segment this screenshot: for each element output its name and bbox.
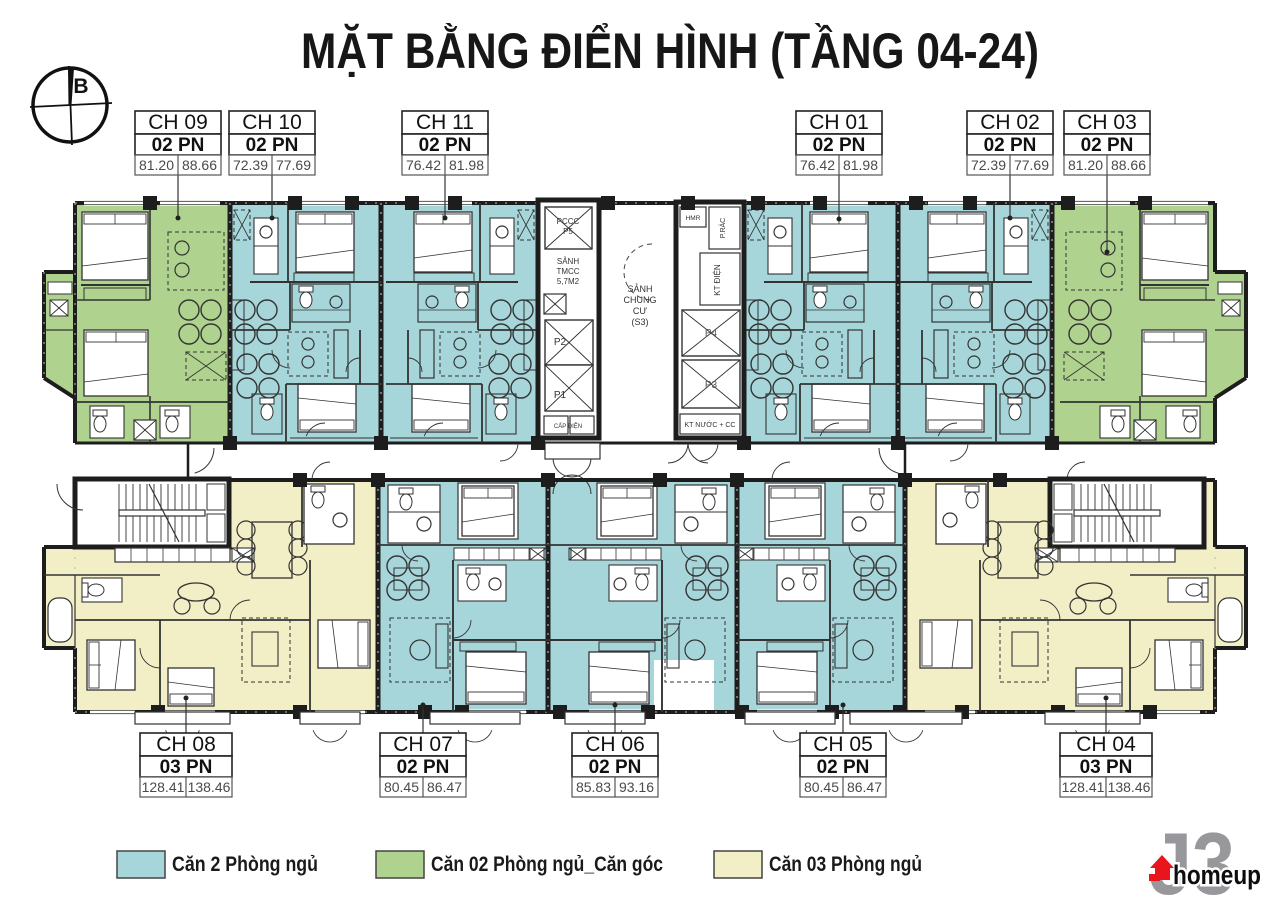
- svg-text:CH 05: CH 05: [813, 733, 873, 756]
- svg-text:128.41: 128.41: [142, 779, 185, 795]
- svg-text:CH 08: CH 08: [156, 733, 216, 756]
- svg-text:Căn 2 Phòng ngủ: Căn 2 Phòng ngủ: [172, 853, 318, 876]
- svg-text:Căn 03 Phòng ngủ: Căn 03 Phòng ngủ: [769, 853, 922, 876]
- svg-text:03 PN: 03 PN: [1080, 757, 1133, 778]
- svg-text:80.45: 80.45: [384, 779, 419, 795]
- svg-text:02 PN: 02 PN: [817, 757, 870, 778]
- svg-text:CH 01: CH 01: [809, 111, 869, 134]
- svg-text:P1: P1: [554, 390, 567, 401]
- svg-text:02 PN: 02 PN: [813, 135, 866, 156]
- svg-text:128.41: 128.41: [1062, 779, 1105, 795]
- svg-text:02 PN: 02 PN: [246, 135, 299, 156]
- svg-text:76.42: 76.42: [406, 157, 441, 173]
- svg-text:93.16: 93.16: [619, 779, 654, 795]
- svg-text:77.69: 77.69: [276, 157, 311, 173]
- svg-text:02 PN: 02 PN: [589, 757, 642, 778]
- svg-text:HMR: HMR: [686, 215, 701, 222]
- svg-text:CHUNG: CHUNG: [624, 295, 657, 305]
- svg-text:CH 03: CH 03: [1077, 111, 1137, 134]
- svg-text:PCCC: PCCC: [557, 217, 580, 226]
- svg-text:02 PN: 02 PN: [1081, 135, 1134, 156]
- svg-text:02 PN: 02 PN: [984, 135, 1037, 156]
- svg-text:72.39: 72.39: [233, 157, 268, 173]
- svg-text:(S3): (S3): [631, 317, 648, 327]
- svg-text:138.46: 138.46: [188, 779, 231, 795]
- svg-text:P5: P5: [563, 227, 573, 236]
- svg-text:88.66: 88.66: [1111, 157, 1146, 173]
- svg-text:SẢNH: SẢNH: [627, 283, 652, 294]
- svg-text:CH 10: CH 10: [242, 111, 302, 134]
- svg-text:P2: P2: [554, 337, 567, 348]
- svg-text:SẢNH: SẢNH: [557, 257, 579, 266]
- svg-text:85.83: 85.83: [576, 779, 611, 795]
- svg-text:81.98: 81.98: [449, 157, 484, 173]
- svg-text:02 PN: 02 PN: [397, 757, 450, 778]
- svg-text:KT ĐIỆN: KT ĐIỆN: [713, 264, 722, 296]
- svg-text:88.66: 88.66: [182, 157, 217, 173]
- svg-text:81.98: 81.98: [843, 157, 878, 173]
- svg-text:CH 06: CH 06: [585, 733, 645, 756]
- svg-text:86.47: 86.47: [427, 779, 462, 795]
- svg-text:TMCC: TMCC: [556, 267, 579, 276]
- svg-text:72.39: 72.39: [971, 157, 1006, 173]
- svg-text:CH 09: CH 09: [148, 111, 208, 134]
- svg-text:86.47: 86.47: [847, 779, 882, 795]
- svg-text:B: B: [73, 75, 88, 98]
- svg-text:MẶT BẰNG ĐIỂN HÌNH (TẦNG 04-24: MẶT BẰNG ĐIỂN HÌNH (TẦNG 04-24): [301, 23, 1039, 79]
- svg-text:P.RÁC: P.RÁC: [718, 218, 727, 239]
- svg-text:CH 07: CH 07: [393, 733, 453, 756]
- svg-text:homeup: homeup: [1173, 860, 1261, 890]
- svg-text:CẤP ĐIỆN: CẤP ĐIỆN: [554, 422, 582, 430]
- svg-text:CH 02: CH 02: [980, 111, 1040, 134]
- svg-text:81.20: 81.20: [139, 157, 174, 173]
- svg-text:CH 11: CH 11: [416, 111, 474, 134]
- svg-text:KT NƯỚC + CC: KT NƯỚC + CC: [685, 420, 736, 429]
- svg-text:Căn 02 Phòng ngủ_Căn góc: Căn 02 Phòng ngủ_Căn góc: [431, 853, 663, 876]
- svg-text:76.42: 76.42: [800, 157, 835, 173]
- svg-text:80.45: 80.45: [804, 779, 839, 795]
- svg-text:02 PN: 02 PN: [419, 135, 472, 156]
- svg-text:138.46: 138.46: [1108, 779, 1151, 795]
- svg-text:P4: P4: [705, 328, 718, 339]
- svg-text:77.69: 77.69: [1014, 157, 1049, 173]
- svg-text:5,7M2: 5,7M2: [557, 277, 580, 286]
- svg-text:CH 04: CH 04: [1076, 733, 1136, 756]
- svg-text:P3: P3: [705, 380, 718, 391]
- svg-text:81.20: 81.20: [1068, 157, 1103, 173]
- svg-text:03 PN: 03 PN: [160, 757, 213, 778]
- svg-text:CƯ: CƯ: [633, 306, 647, 316]
- svg-text:02 PN: 02 PN: [152, 135, 205, 156]
